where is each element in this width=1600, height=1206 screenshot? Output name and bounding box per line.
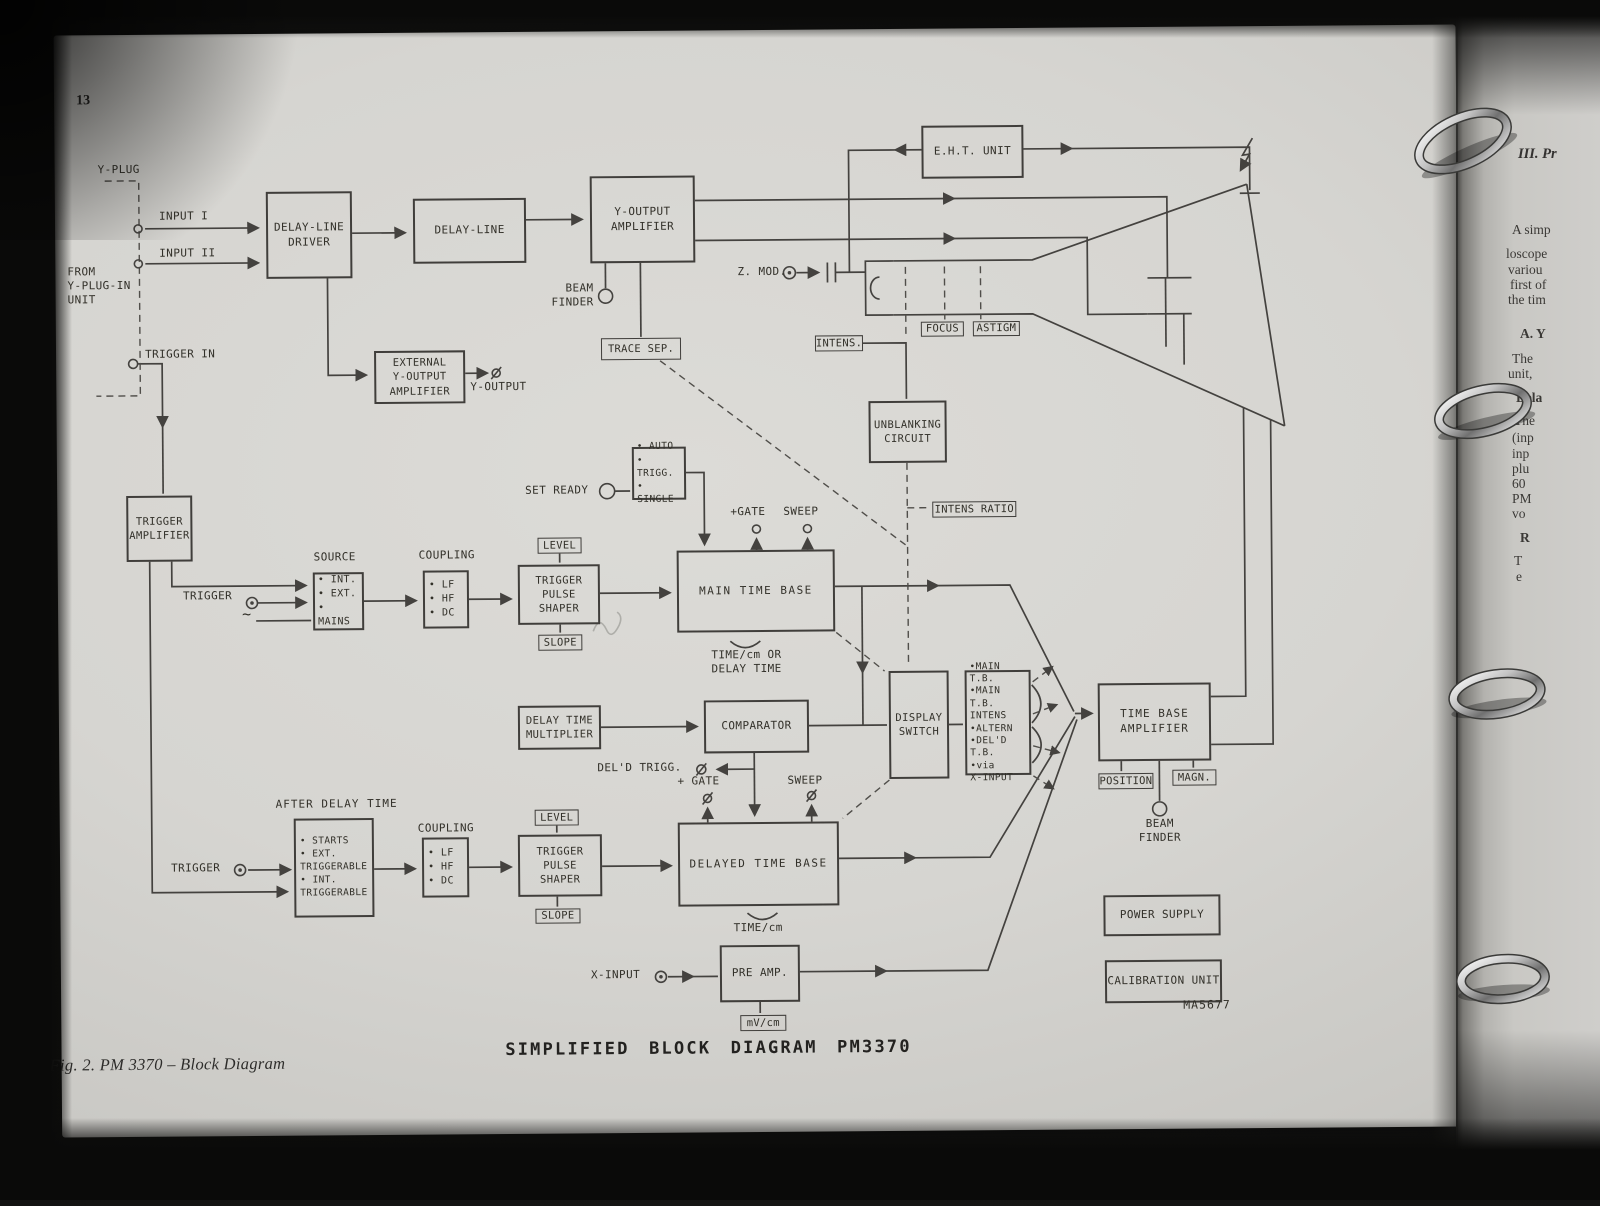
binder-ring-2: [1429, 379, 1537, 446]
binder-ring-3: [1447, 668, 1548, 723]
binder-ring-4: [1456, 956, 1551, 1004]
binder-rings: [0, 0, 1600, 1200]
binder-ring-1: [1406, 99, 1521, 185]
